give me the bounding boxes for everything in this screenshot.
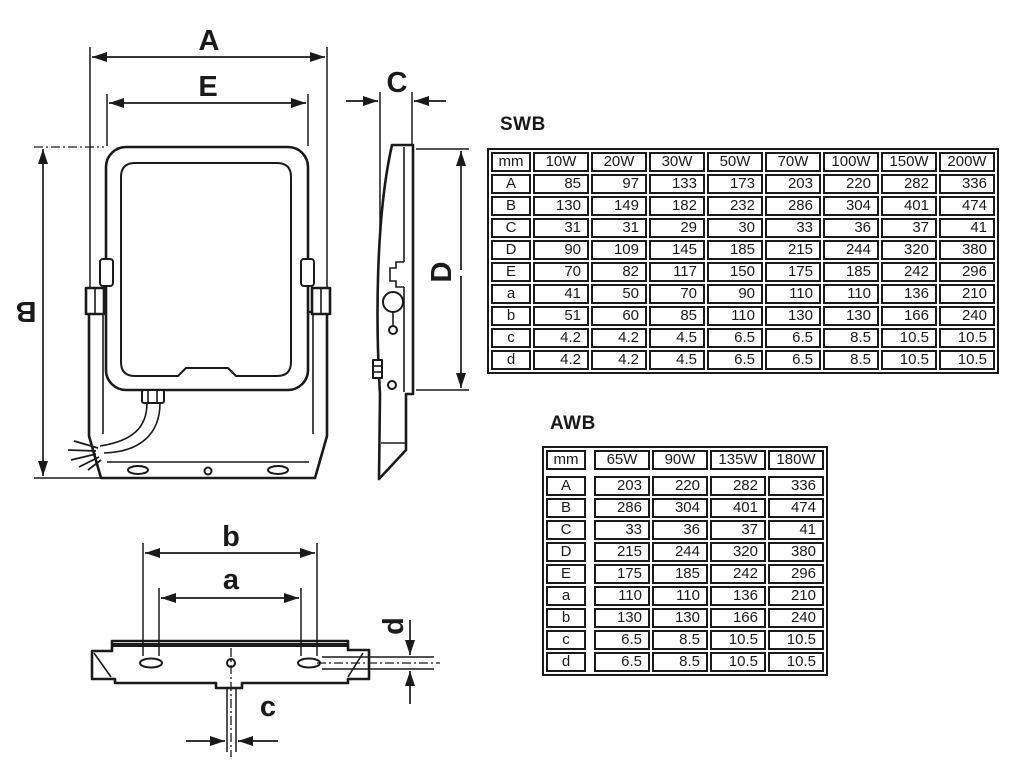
value-cell: 175 [594, 564, 650, 584]
data-row: D215244320380 [546, 542, 824, 562]
value-cell: 10.5 [939, 350, 995, 370]
value-cell: 336 [768, 476, 824, 496]
value-cell: 220 [823, 174, 879, 194]
data-row: c4.24.24.56.56.58.510.510.5 [491, 328, 995, 348]
column-spacer [588, 450, 592, 470]
value-cell: 286 [765, 196, 821, 216]
value-cell: 4.2 [533, 350, 589, 370]
value-cell: 185 [823, 262, 879, 282]
column-header: mm [546, 450, 586, 470]
awb-dimension-table: mm65W90W135W180WA203220282336B2863044014… [542, 446, 828, 676]
column-header: 90W [652, 450, 708, 470]
data-row: a110110136210 [546, 586, 824, 606]
value-cell: 90 [533, 240, 589, 260]
row-label: E [546, 564, 586, 584]
side-mounting-tab [373, 360, 382, 378]
dim-body-height: D [416, 149, 469, 390]
value-cell: 320 [881, 240, 937, 260]
row-label: b [491, 306, 531, 326]
base-slot-left [140, 659, 162, 668]
row-label: B [546, 498, 586, 518]
value-cell: 232 [707, 196, 763, 216]
value-cell: 401 [710, 498, 766, 518]
value-cell: 203 [594, 476, 650, 496]
value-cell: 41 [768, 520, 824, 540]
dim-slot-height: d [378, 617, 410, 704]
data-row: a41507090110110136210 [491, 284, 995, 304]
value-cell: 130 [533, 196, 589, 216]
value-cell: 36 [652, 520, 708, 540]
base-plate-edge-band [113, 643, 347, 647]
column-spacer [588, 542, 592, 562]
swb-dimension-table: mm10W20W30W50W70W100W150W200WA8597133173… [487, 148, 999, 374]
value-cell: 6.5 [594, 630, 650, 650]
dim-label-outer-hole-spacing: b [222, 521, 240, 553]
column-header: 180W [768, 450, 824, 470]
value-cell: 304 [652, 498, 708, 518]
value-cell: 136 [710, 586, 766, 606]
column-header: 50W [707, 152, 763, 172]
lens-outline [121, 163, 291, 376]
dim-label-inner-hole-spacing: a [223, 564, 240, 596]
value-cell: 10.5 [881, 328, 937, 348]
value-cell: 50 [591, 284, 647, 304]
value-cell: 110 [707, 306, 763, 326]
value-cell: 4.2 [591, 350, 647, 370]
value-cell: 70 [649, 284, 705, 304]
value-cell: 240 [768, 608, 824, 628]
side-view: C D [346, 67, 469, 479]
value-cell: 8.5 [652, 652, 708, 672]
side-screw-upper [389, 326, 397, 334]
bracket-slot-left [128, 466, 148, 474]
value-cell: 145 [649, 240, 705, 260]
value-cell: 10.5 [939, 328, 995, 348]
value-cell: 282 [881, 174, 937, 194]
value-cell: 97 [591, 174, 647, 194]
value-cell: 210 [768, 586, 824, 606]
data-row: b516085110130130166240 [491, 306, 995, 326]
column-spacer [588, 652, 592, 672]
row-label: a [491, 284, 531, 304]
column-header: 30W [649, 152, 705, 172]
data-row: c6.58.510.510.5 [546, 630, 824, 650]
value-cell: 130 [594, 608, 650, 628]
value-cell: 10.5 [710, 652, 766, 672]
value-cell: 6.5 [707, 328, 763, 348]
value-cell: 117 [649, 262, 705, 282]
value-cell: 175 [765, 262, 821, 282]
value-cell: 82 [591, 262, 647, 282]
value-cell: 166 [710, 608, 766, 628]
awb-table-title: AWB [550, 413, 596, 435]
value-cell: 6.5 [765, 350, 821, 370]
value-cell: 185 [707, 240, 763, 260]
value-cell: 31 [591, 218, 647, 238]
column-spacer [588, 586, 592, 606]
side-pivot-knob [383, 292, 403, 312]
front-view: A E B [16, 25, 330, 478]
column-header: 65W [594, 450, 650, 470]
value-cell: 31 [533, 218, 589, 238]
row-label: d [491, 350, 531, 370]
value-cell: 37 [881, 218, 937, 238]
bracket-slot-right [268, 466, 288, 474]
value-cell: 166 [881, 306, 937, 326]
value-cell: 6.5 [707, 350, 763, 370]
value-cell: 110 [652, 586, 708, 606]
value-cell: 215 [765, 240, 821, 260]
value-cell: 474 [939, 196, 995, 216]
bracket-center-hole [205, 468, 212, 475]
data-row: C33363741 [546, 520, 824, 540]
value-cell: 336 [939, 174, 995, 194]
header-row: mm10W20W30W50W70W100W150W200W [491, 152, 995, 172]
row-label: b [546, 608, 586, 628]
value-cell: 33 [594, 520, 650, 540]
bottom-view: b a c d [92, 521, 440, 757]
dim-label-body-height: D [426, 262, 458, 283]
dim-label-inner-width: E [198, 71, 217, 103]
value-cell: 6.5 [765, 328, 821, 348]
data-row: b130130166240 [546, 608, 824, 628]
value-cell: 6.5 [594, 652, 650, 672]
value-cell: 110 [594, 586, 650, 606]
column-header: mm [491, 152, 531, 172]
row-label: D [546, 542, 586, 562]
dim-label-overall-height: B [16, 295, 37, 327]
value-cell: 10.5 [881, 350, 937, 370]
value-cell: 296 [939, 262, 995, 282]
value-cell: 242 [881, 262, 937, 282]
column-header: 10W [533, 152, 589, 172]
dim-label-slot-height: d [378, 617, 410, 635]
value-cell: 203 [765, 174, 821, 194]
column-header: 70W [765, 152, 821, 172]
column-header: 150W [881, 152, 937, 172]
value-cell: 182 [649, 196, 705, 216]
swb-table-title: SWB [500, 114, 546, 136]
value-cell: 380 [768, 542, 824, 562]
dim-label-depth: C [387, 67, 408, 99]
value-cell: 60 [591, 306, 647, 326]
side-tab-left [100, 259, 113, 286]
value-cell: 85 [649, 306, 705, 326]
value-cell: 210 [939, 284, 995, 304]
value-cell: 4.5 [649, 328, 705, 348]
column-header: 20W [591, 152, 647, 172]
value-cell: 242 [710, 564, 766, 584]
value-cell: 150 [707, 262, 763, 282]
row-label: c [491, 328, 531, 348]
value-cell: 10.5 [768, 630, 824, 650]
value-cell: 380 [939, 240, 995, 260]
data-row: C3131293033363741 [491, 218, 995, 238]
data-row: d6.58.510.510.5 [546, 652, 824, 672]
value-cell: 30 [707, 218, 763, 238]
value-cell: 220 [652, 476, 708, 496]
data-row: d4.24.24.56.56.58.510.510.5 [491, 350, 995, 370]
value-cell: 33 [765, 218, 821, 238]
row-label: A [546, 476, 586, 496]
value-cell: 149 [591, 196, 647, 216]
data-row: B130149182232286304401474 [491, 196, 995, 216]
value-cell: 474 [768, 498, 824, 518]
column-header: 135W [710, 450, 766, 470]
value-cell: 41 [533, 284, 589, 304]
value-cell: 244 [652, 542, 708, 562]
data-row: D90109145185215244320380 [491, 240, 995, 260]
value-cell: 90 [707, 284, 763, 304]
value-cell: 185 [652, 564, 708, 584]
value-cell: 130 [823, 306, 879, 326]
side-screw-lower [388, 381, 396, 389]
column-spacer [588, 520, 592, 540]
row-label: E [491, 262, 531, 282]
column-spacer [588, 498, 592, 518]
data-row: B286304401474 [546, 498, 824, 518]
value-cell: 110 [765, 284, 821, 304]
dim-label-center-hole: c [260, 691, 276, 723]
cable-gland [142, 390, 164, 403]
value-cell: 70 [533, 262, 589, 282]
column-spacer [588, 608, 592, 628]
row-label: A [491, 174, 531, 194]
value-cell: 29 [649, 218, 705, 238]
value-cell: 286 [594, 498, 650, 518]
row-label: C [546, 520, 586, 540]
column-spacer [588, 476, 592, 496]
data-row: E7082117150175185242296 [491, 262, 995, 282]
dim-inner-width: E [107, 71, 308, 146]
data-row: A203220282336 [546, 476, 824, 496]
value-cell: 401 [881, 196, 937, 216]
row-label: C [491, 218, 531, 238]
header-gap-row [546, 472, 824, 474]
value-cell: 85 [533, 174, 589, 194]
base-slot-right [298, 659, 320, 668]
dimension-sheet: A E B [0, 0, 1024, 767]
dimension-drawing: A E B [0, 0, 490, 767]
value-cell: 282 [710, 476, 766, 496]
column-spacer [588, 564, 592, 584]
row-label: c [546, 630, 586, 650]
spacer-cell [546, 472, 824, 474]
value-cell: 130 [765, 306, 821, 326]
value-cell: 41 [939, 218, 995, 238]
row-label: B [491, 196, 531, 216]
side-tab-right [301, 259, 314, 286]
value-cell: 240 [939, 306, 995, 326]
value-cell: 244 [823, 240, 879, 260]
row-label: D [491, 240, 531, 260]
column-spacer [588, 630, 592, 650]
value-cell: 4.2 [533, 328, 589, 348]
value-cell: 10.5 [768, 652, 824, 672]
value-cell: 109 [591, 240, 647, 260]
value-cell: 110 [823, 284, 879, 304]
value-cell: 8.5 [652, 630, 708, 650]
value-cell: 173 [707, 174, 763, 194]
value-cell: 36 [823, 218, 879, 238]
value-cell: 296 [768, 564, 824, 584]
row-label: a [546, 586, 586, 606]
column-header: 100W [823, 152, 879, 172]
value-cell: 51 [533, 306, 589, 326]
value-cell: 133 [649, 174, 705, 194]
value-cell: 215 [594, 542, 650, 562]
value-cell: 130 [652, 608, 708, 628]
value-cell: 8.5 [823, 328, 879, 348]
value-cell: 10.5 [710, 630, 766, 650]
dim-label-overall-width: A [199, 25, 220, 57]
value-cell: 37 [710, 520, 766, 540]
data-row: E175185242296 [546, 564, 824, 584]
value-cell: 8.5 [823, 350, 879, 370]
value-cell: 4.5 [649, 350, 705, 370]
value-cell: 4.2 [591, 328, 647, 348]
value-cell: 320 [710, 542, 766, 562]
column-header: 200W [939, 152, 995, 172]
value-cell: 136 [881, 284, 937, 304]
header-row: mm65W90W135W180W [546, 450, 824, 470]
data-row: A8597133173203220282336 [491, 174, 995, 194]
row-label: d [546, 652, 586, 672]
value-cell: 304 [823, 196, 879, 216]
